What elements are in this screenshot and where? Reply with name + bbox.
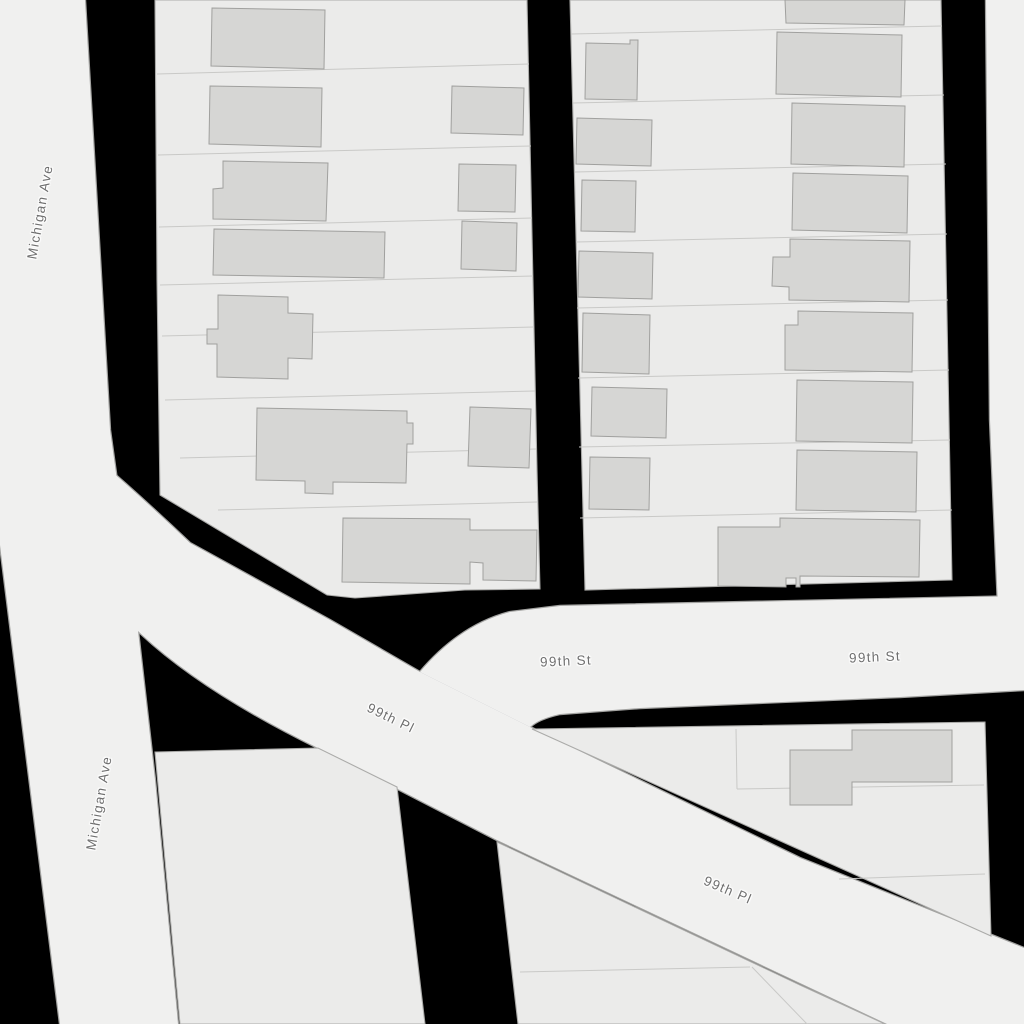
building — [718, 518, 920, 587]
building — [576, 118, 652, 166]
building — [213, 229, 385, 278]
building — [796, 380, 913, 443]
building — [796, 450, 917, 512]
building — [578, 251, 653, 299]
building — [792, 173, 908, 233]
building — [213, 161, 328, 221]
building — [785, 0, 905, 25]
building — [209, 86, 322, 147]
building — [461, 221, 517, 271]
street-label-99th-st: 99th St — [849, 648, 901, 665]
building — [211, 8, 325, 69]
building — [582, 313, 650, 374]
map-canvas[interactable]: Michigan Ave Michigan Ave 99th St 99th S… — [0, 0, 1024, 1024]
building — [585, 40, 638, 100]
building — [791, 103, 905, 167]
building — [785, 311, 913, 372]
street-label-99th-st: 99th St — [540, 652, 592, 669]
building — [468, 407, 531, 468]
building — [458, 164, 516, 212]
block-southwest — [155, 748, 425, 1024]
building — [772, 239, 910, 302]
building — [589, 457, 650, 510]
building — [776, 32, 902, 97]
building — [591, 387, 667, 438]
building — [581, 180, 636, 232]
building — [451, 86, 524, 135]
map-layers — [0, 0, 1024, 1024]
